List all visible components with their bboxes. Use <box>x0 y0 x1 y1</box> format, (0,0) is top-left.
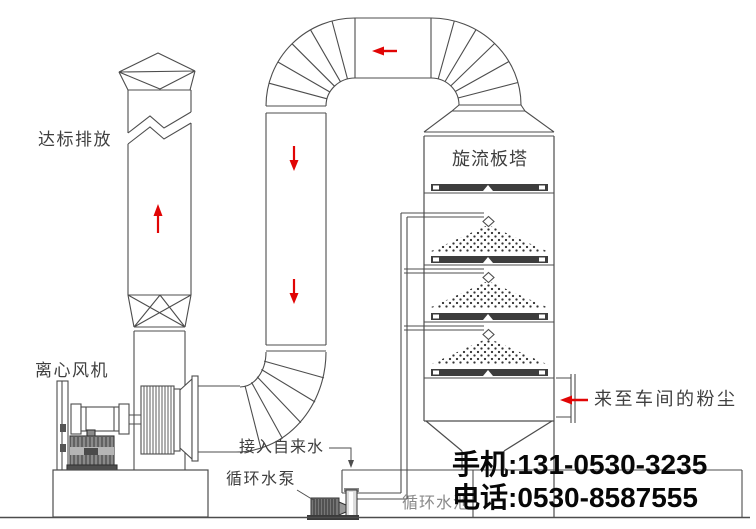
fan-inlet-elbow <box>236 345 326 452</box>
fan-bracket <box>57 381 68 470</box>
spray-cones <box>429 225 549 365</box>
fan-shaft-assembly <box>71 404 141 434</box>
tray <box>424 313 554 322</box>
flow-arrow-left-icon <box>372 47 397 56</box>
tower-top-transition <box>424 105 554 136</box>
label-pump: 循环水泵 <box>226 472 296 489</box>
label-tower: 旋流板塔 <box>452 150 528 169</box>
upper-right-elbow <box>431 18 521 105</box>
contact-info: 手机:131-0530-3235 电话:0530-8587555 <box>452 448 707 514</box>
fan-inlet-cone <box>180 376 198 461</box>
flow-arrow-left-icon <box>560 396 588 405</box>
flow-arrow-down-icon <box>290 279 299 304</box>
label-emission: 达标排放 <box>38 131 112 149</box>
stack-reducer <box>128 295 191 331</box>
flow-arrow-down-icon <box>290 146 299 171</box>
top-duct <box>355 18 431 78</box>
tap-water-leader <box>329 448 351 461</box>
tray <box>424 184 554 193</box>
label-dust-source: 来至车间的粉尘 <box>594 390 738 409</box>
pump-leader <box>297 490 315 501</box>
flow-arrow-up-icon <box>154 204 163 233</box>
centrifugal-fan <box>57 376 240 471</box>
flue-break-symbol <box>128 112 191 144</box>
diagram-canvas: 达标排放 旋流板塔 离心风机 来至车间的粉尘 接入自来水 循环水泵 循环水池 手… <box>0 0 756 529</box>
contact-mobile: 手机:131-0530-3235 <box>452 448 707 481</box>
fan-impeller-housing <box>141 386 180 454</box>
tray <box>424 256 554 265</box>
downcomer-duct <box>266 106 326 345</box>
fan-motor <box>67 430 117 471</box>
label-tap-water: 接入自来水 <box>239 440 324 457</box>
tap-water-arrow-icon <box>348 460 354 468</box>
contact-phone: 电话:0530-8587555 <box>452 481 707 514</box>
flow-arrows <box>154 47 589 405</box>
circulating-pump <box>307 488 359 520</box>
stack-rain-cap <box>119 53 195 90</box>
tray <box>424 369 554 378</box>
upper-left-elbow <box>266 18 355 106</box>
label-fan: 离心风机 <box>35 362 109 380</box>
